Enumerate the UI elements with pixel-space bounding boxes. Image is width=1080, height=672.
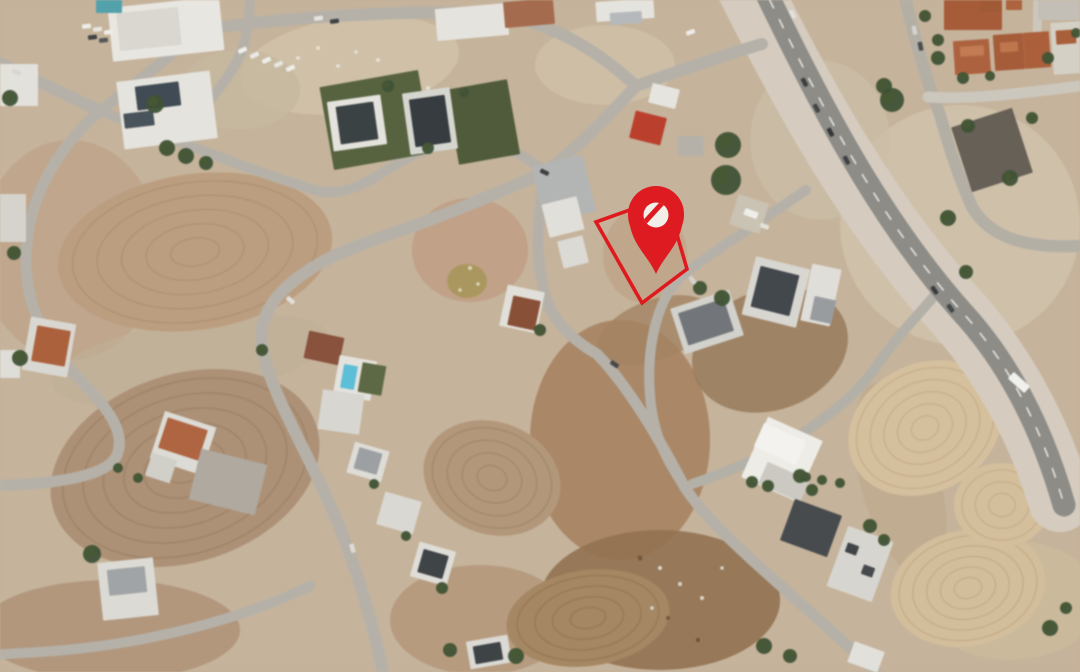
listing-overlay <box>0 0 1080 672</box>
location-pin-icon[interactable] <box>628 186 684 274</box>
satellite-map[interactable] <box>0 0 1080 672</box>
pin-body <box>628 186 684 274</box>
